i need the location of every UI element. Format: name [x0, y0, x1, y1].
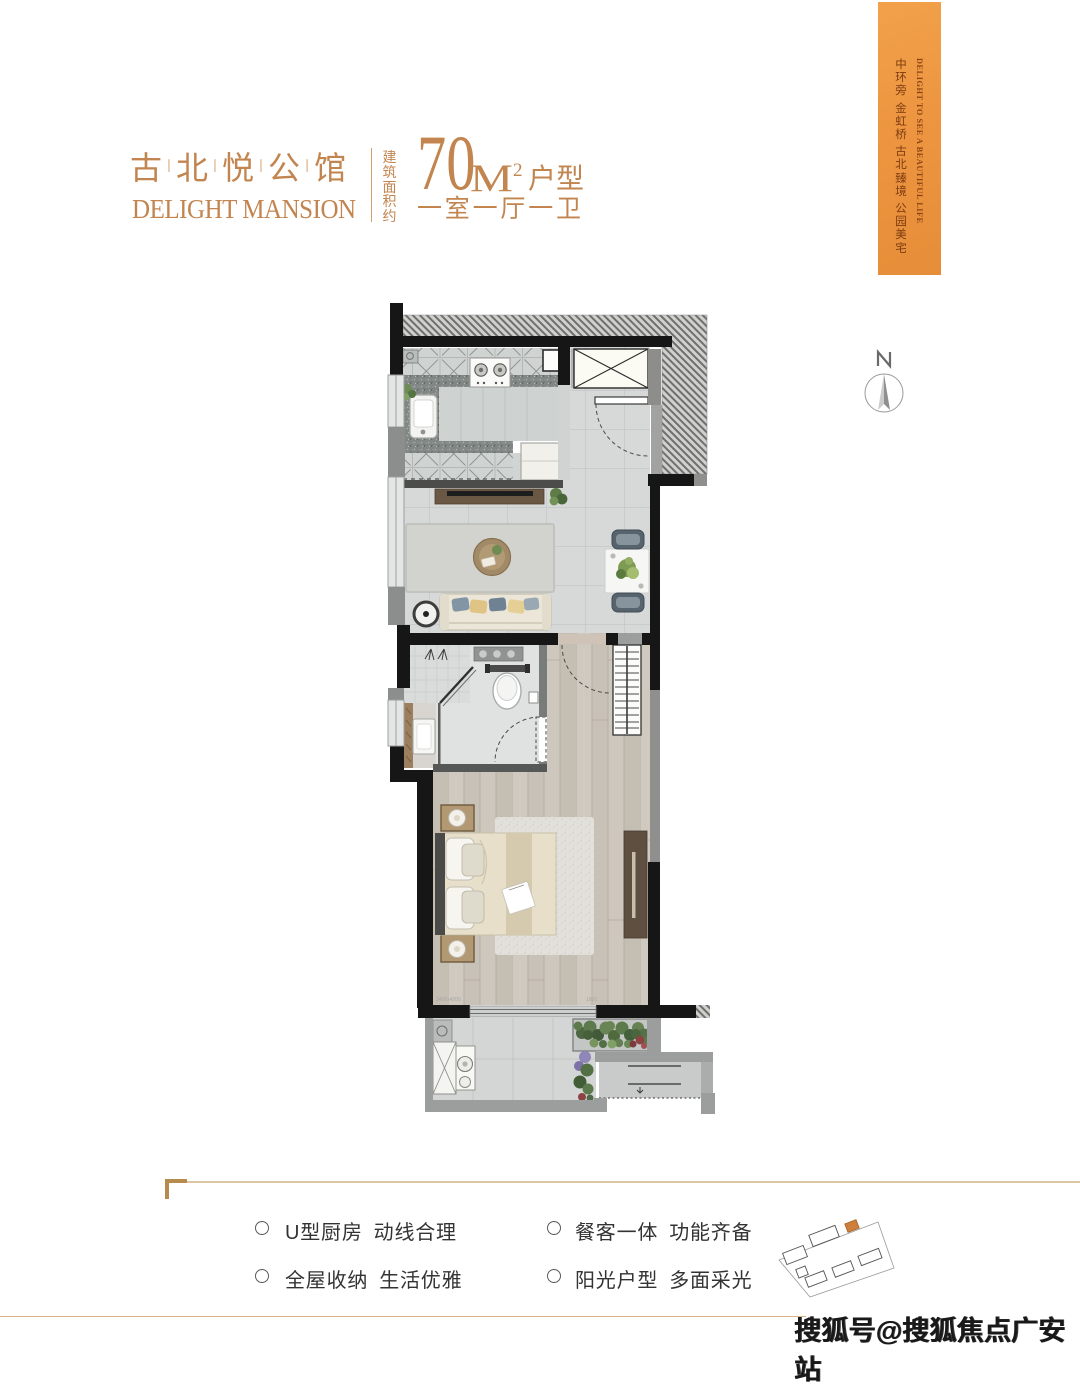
svg-text:1800: 1800 — [586, 997, 597, 1003]
svg-text:3400x4200: 3400x4200 — [436, 997, 461, 1003]
